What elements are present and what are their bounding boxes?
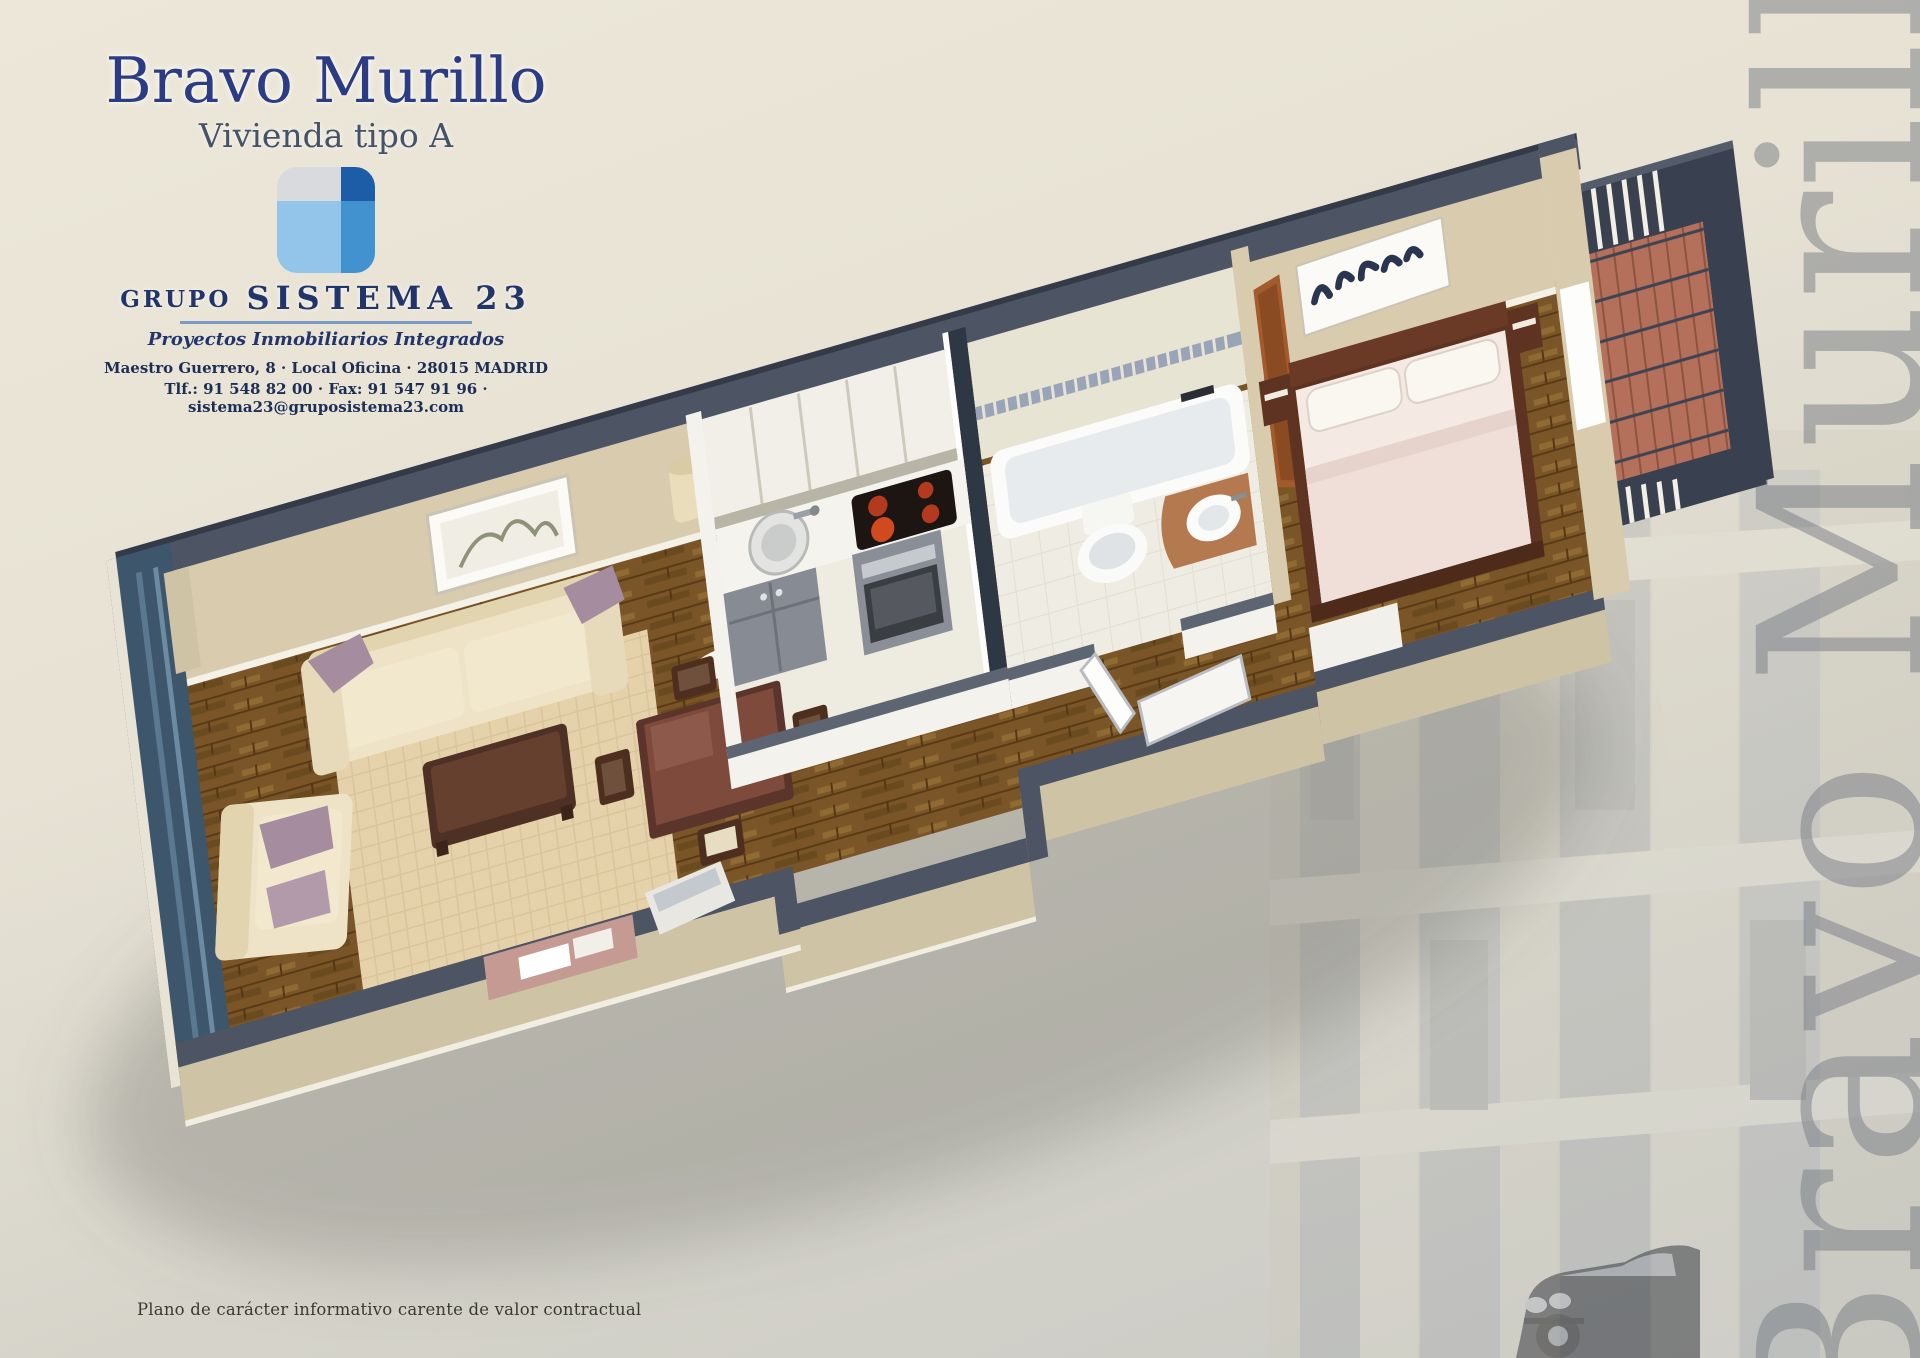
page-subtitle: Vivienda tipo A xyxy=(46,116,606,155)
page-title: Bravo Murillo xyxy=(46,48,606,114)
brand-header: Bravo Murillo Vivienda tipo A GRUPO SIST… xyxy=(46,48,606,416)
armchair xyxy=(215,793,353,962)
company-contact: Tlf.: 91 548 82 00 · Fax: 91 547 91 96 ·… xyxy=(46,380,606,416)
company-name-text: SISTEMA 23 xyxy=(246,279,531,317)
company-logo-icon xyxy=(46,167,606,277)
company-name: GRUPO SISTEMA 23 xyxy=(46,279,606,317)
company-prefix: GRUPO xyxy=(120,286,231,313)
flyer-canvas: Bravo Murillo xyxy=(0,0,1920,1358)
divider-rule xyxy=(180,321,472,324)
company-address: Maestro Guerrero, 8 · Local Oficina · 28… xyxy=(46,359,606,377)
company-tagline: Proyectos Inmobiliarios Integrados xyxy=(46,329,606,350)
disclaimer-text: Plano de carácter informativo carente de… xyxy=(137,1300,641,1319)
